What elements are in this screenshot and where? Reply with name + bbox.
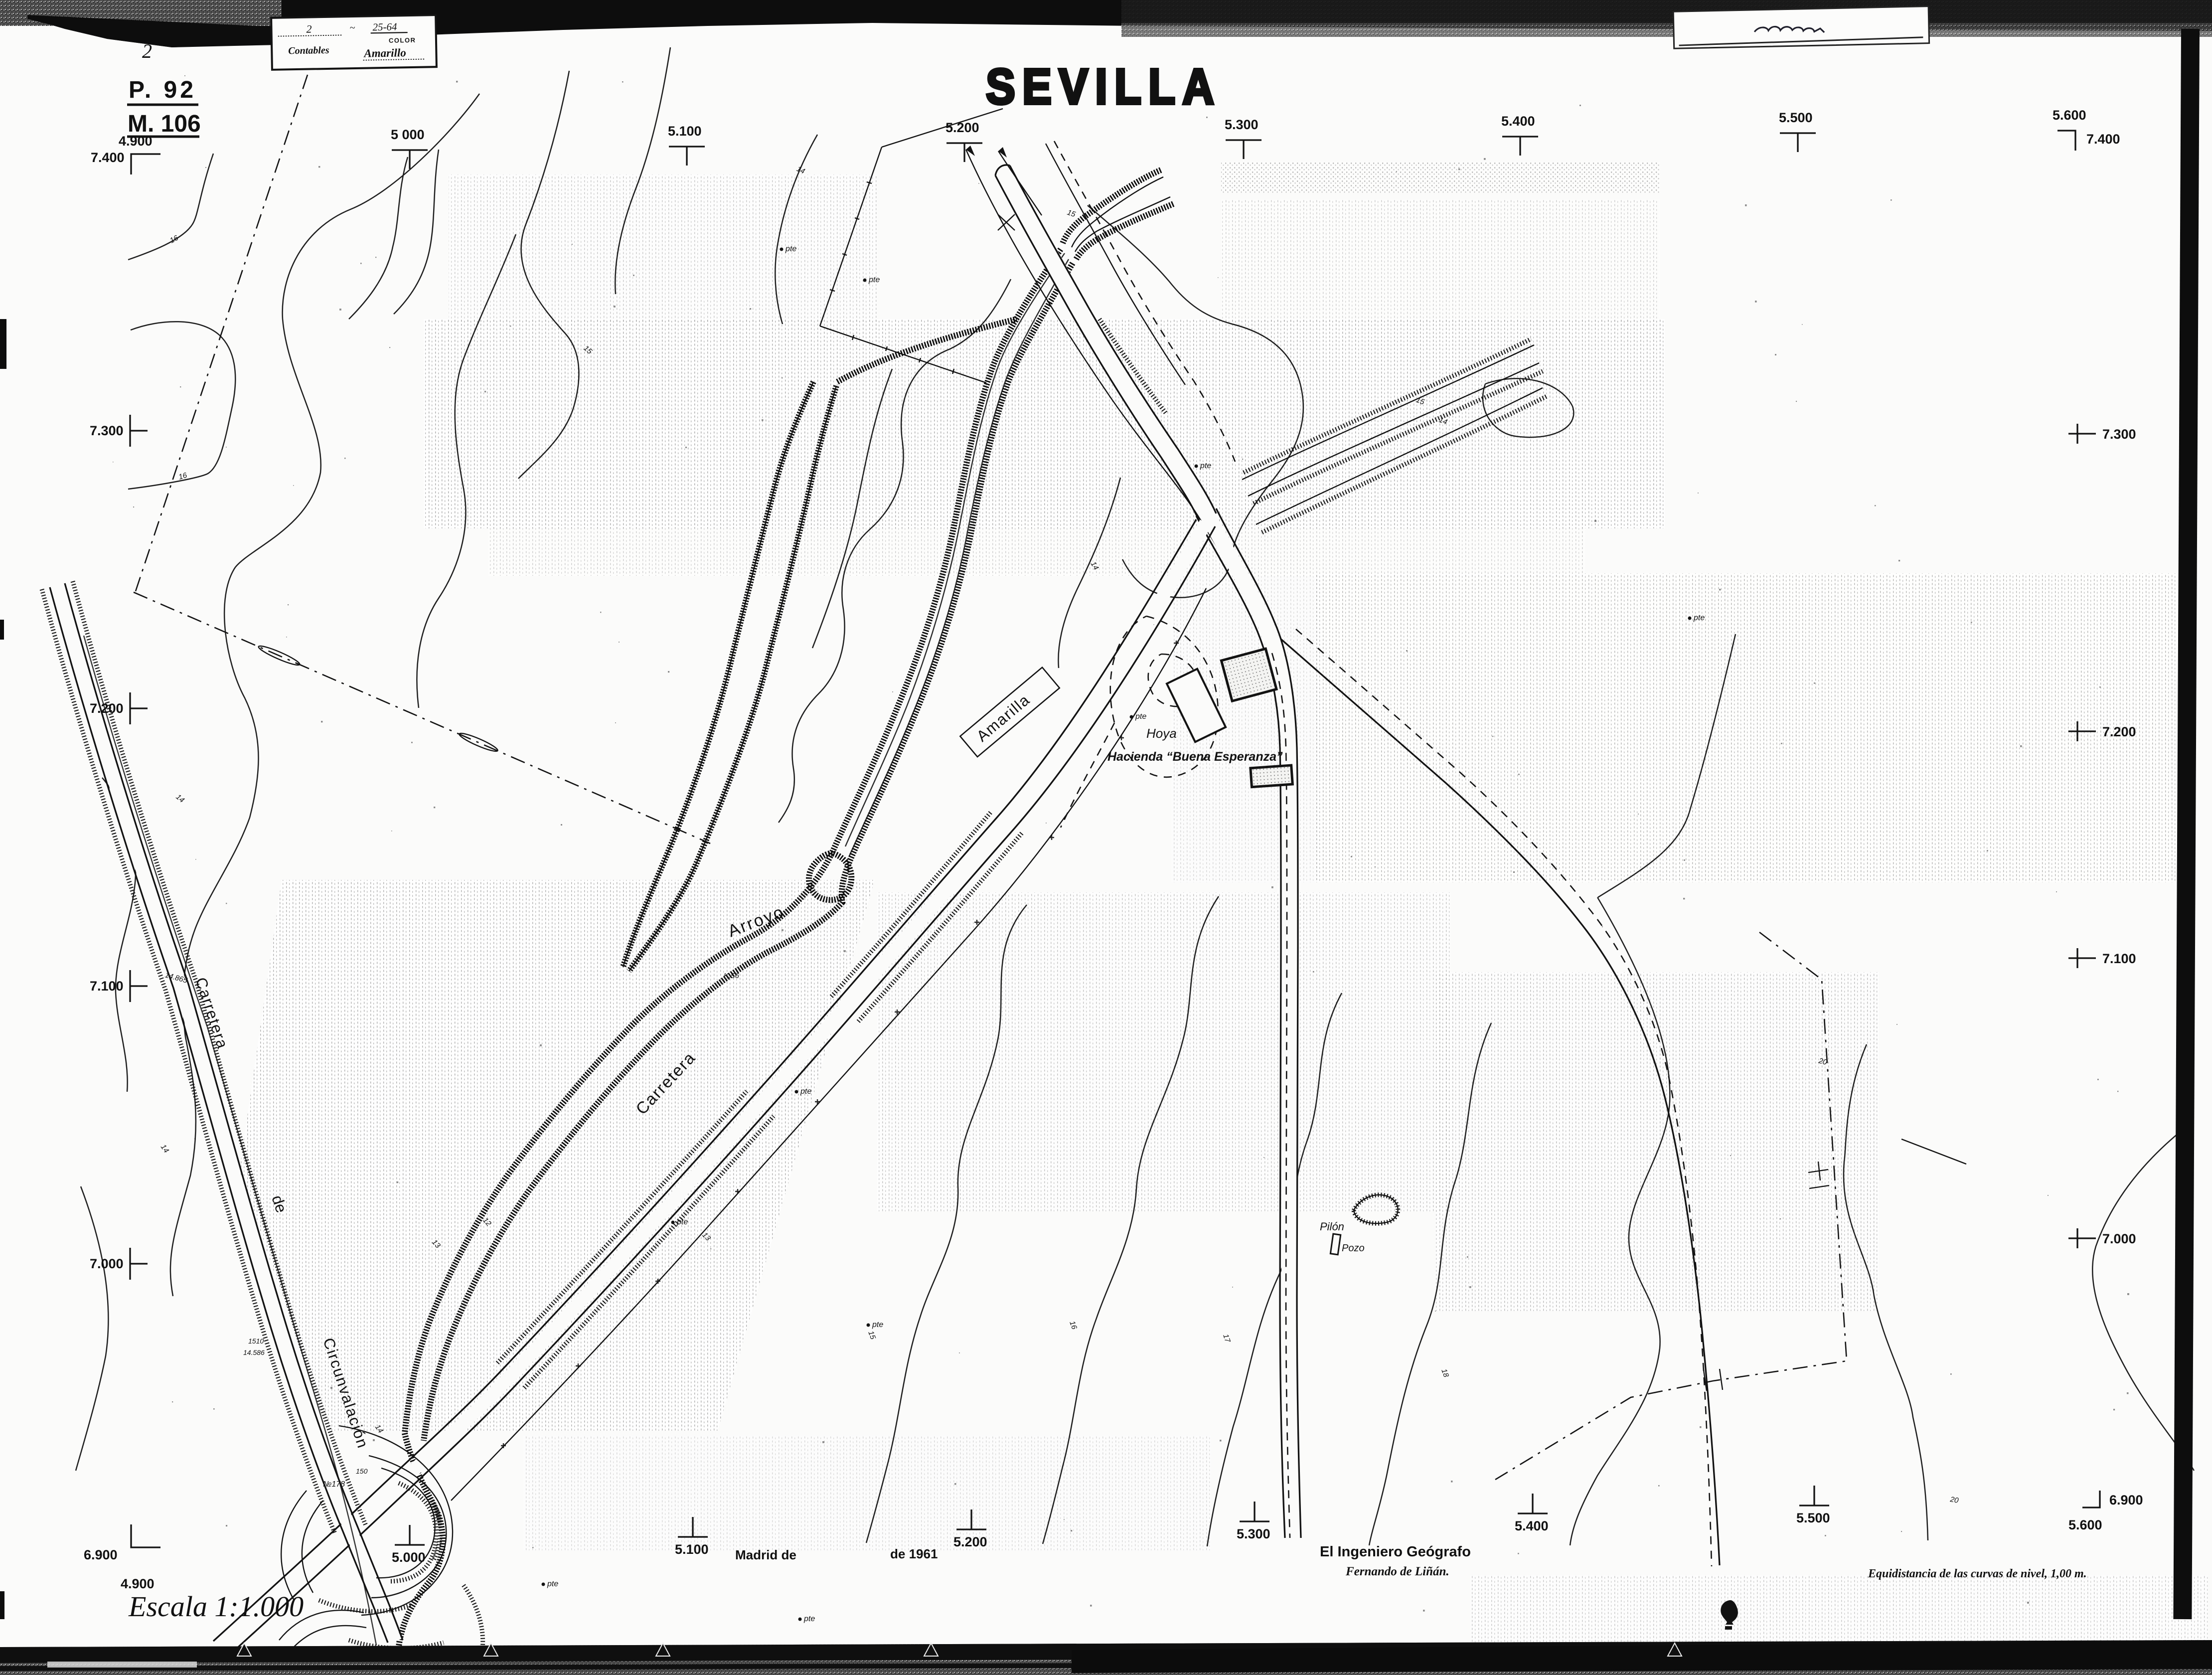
svg-text:Contables: Contables (288, 45, 329, 56)
svg-text:5.400: 5.400 (1515, 1518, 1549, 1533)
svg-text:7.200: 7.200 (2102, 724, 2136, 739)
svg-text:2: 2 (306, 22, 312, 35)
svg-text:7.400: 7.400 (91, 150, 125, 165)
svg-text:1510: 1510 (248, 1337, 264, 1345)
svg-text:5.000: 5.000 (392, 1550, 426, 1565)
svg-text:6.900: 6.900 (2109, 1493, 2143, 1507)
svg-text:5.500: 5.500 (1779, 110, 1813, 125)
svg-text:pte: pte (1135, 712, 1146, 721)
svg-text:7.100: 7.100 (2102, 951, 2136, 966)
svg-text:5 000: 5 000 (391, 127, 425, 142)
svg-text:Madrid de: Madrid de (735, 1547, 796, 1562)
svg-text:5.300: 5.300 (1237, 1526, 1270, 1541)
svg-text:P. 92: P. 92 (129, 77, 196, 103)
svg-text:5.600: 5.600 (2053, 108, 2086, 123)
svg-text:pte: pte (547, 1580, 558, 1588)
svg-text:7.100: 7.100 (90, 979, 124, 994)
svg-text:20: 20 (1949, 1495, 1959, 1505)
svg-text:7.300: 7.300 (2102, 427, 2136, 442)
svg-text:pte: pte (872, 1321, 883, 1329)
svg-text:Amarillo: Amarillo (363, 46, 406, 60)
svg-text:SEVILLA: SEVILLA (986, 59, 1221, 115)
svg-text:25-64: 25-64 (372, 20, 397, 33)
svg-text:de 1961: de 1961 (890, 1546, 938, 1561)
svg-text:pte: pte (1693, 614, 1705, 622)
svg-text:pte: pte (868, 276, 880, 284)
svg-text:5.300: 5.300 (1225, 117, 1259, 132)
svg-text:5.100: 5.100 (668, 124, 702, 139)
svg-text:Escala 1:1.000: Escala 1:1.000 (128, 1590, 304, 1623)
svg-text:Hacienda “Buena Esperanza”: Hacienda “Buena Esperanza” (1107, 750, 1283, 764)
svg-text:COLOR: COLOR (389, 36, 416, 44)
svg-text:7.200: 7.200 (90, 701, 124, 716)
svg-text:Hoya: Hoya (1146, 726, 1177, 741)
svg-text:pte: pte (1200, 462, 1211, 470)
svg-text:~: ~ (349, 22, 355, 33)
svg-text:Pilón: Pilón (1320, 1220, 1344, 1233)
svg-text:№178: №178 (323, 1480, 345, 1489)
svg-text:7.000: 7.000 (2102, 1231, 2136, 1246)
svg-text:pte: pte (676, 1218, 688, 1226)
svg-text:Fernando de Liñán.: Fernando de Liñán. (1345, 1565, 1449, 1578)
svg-text:7.300: 7.300 (90, 423, 124, 438)
svg-text:150: 150 (356, 1467, 368, 1475)
svg-text:5.400: 5.400 (1501, 114, 1535, 129)
svg-text:4.900: 4.900 (119, 134, 153, 149)
svg-text:5.500: 5.500 (1796, 1510, 1830, 1525)
svg-text:El Ingeniero Geógrafo: El Ingeniero Geógrafo (1320, 1544, 1471, 1560)
svg-text:7.000: 7.000 (90, 1256, 124, 1271)
svg-text:7.400: 7.400 (2086, 132, 2120, 147)
svg-text:5.100: 5.100 (675, 1542, 709, 1557)
svg-text:14.586: 14.586 (243, 1348, 265, 1356)
svg-text:pte: pte (803, 1615, 815, 1623)
svg-text:5.200: 5.200 (953, 1534, 987, 1549)
svg-text:pte: pte (785, 245, 796, 253)
svg-text:4.900: 4.900 (121, 1576, 155, 1591)
svg-text:Equidistancia de las curvas de: Equidistancia de las curvas de nivel, 1,… (1868, 1567, 2087, 1580)
svg-text:pte: pte (800, 1087, 811, 1096)
svg-text:Pozo: Pozo (1342, 1243, 1365, 1254)
svg-text:5.600: 5.600 (2068, 1517, 2102, 1532)
svg-text:5.200: 5.200 (946, 120, 979, 135)
svg-text:6.900: 6.900 (84, 1547, 118, 1562)
svg-text:K.56: K.56 (724, 972, 740, 980)
